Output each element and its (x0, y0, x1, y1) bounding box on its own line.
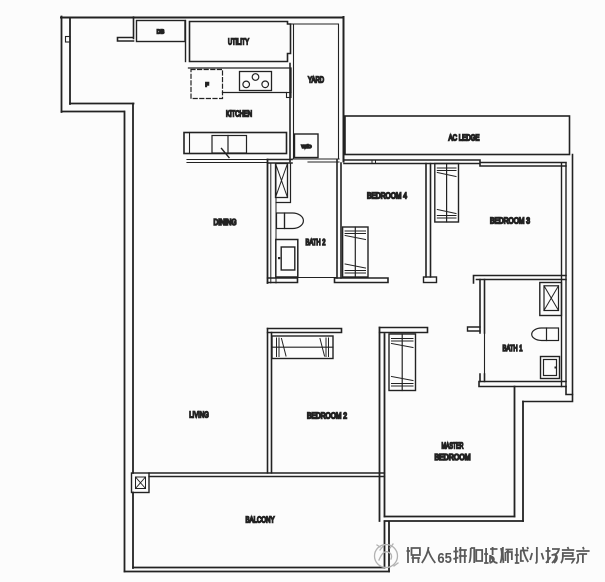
svg-text:DINING: DINING (214, 218, 237, 227)
svg-text:MASTER: MASTER (442, 442, 464, 451)
svg-text:AC LEDGE: AC LEDGE (449, 134, 480, 143)
svg-text:DB: DB (157, 29, 165, 35)
svg-text:W/D: W/D (302, 144, 313, 149)
svg-text:UTILITY: UTILITY (228, 38, 250, 47)
svg-text:BATH 2: BATH 2 (306, 238, 326, 247)
svg-text:65: 65 (437, 550, 452, 567)
svg-text:YARD: YARD (308, 76, 324, 85)
svg-text:LIVING: LIVING (189, 411, 209, 420)
svg-text:BEDROOM: BEDROOM (435, 453, 471, 462)
svg-text:BEDROOM 3: BEDROOM 3 (490, 217, 531, 226)
svg-text:BEDROOM 4: BEDROOM 4 (367, 192, 408, 201)
svg-text:F: F (205, 83, 209, 89)
svg-text:BEDROOM 2: BEDROOM 2 (307, 412, 347, 421)
svg-text:KITCHEN: KITCHEN (226, 110, 252, 119)
svg-text:BALCONY: BALCONY (246, 516, 276, 525)
svg-text:BATH 1: BATH 1 (503, 344, 523, 353)
